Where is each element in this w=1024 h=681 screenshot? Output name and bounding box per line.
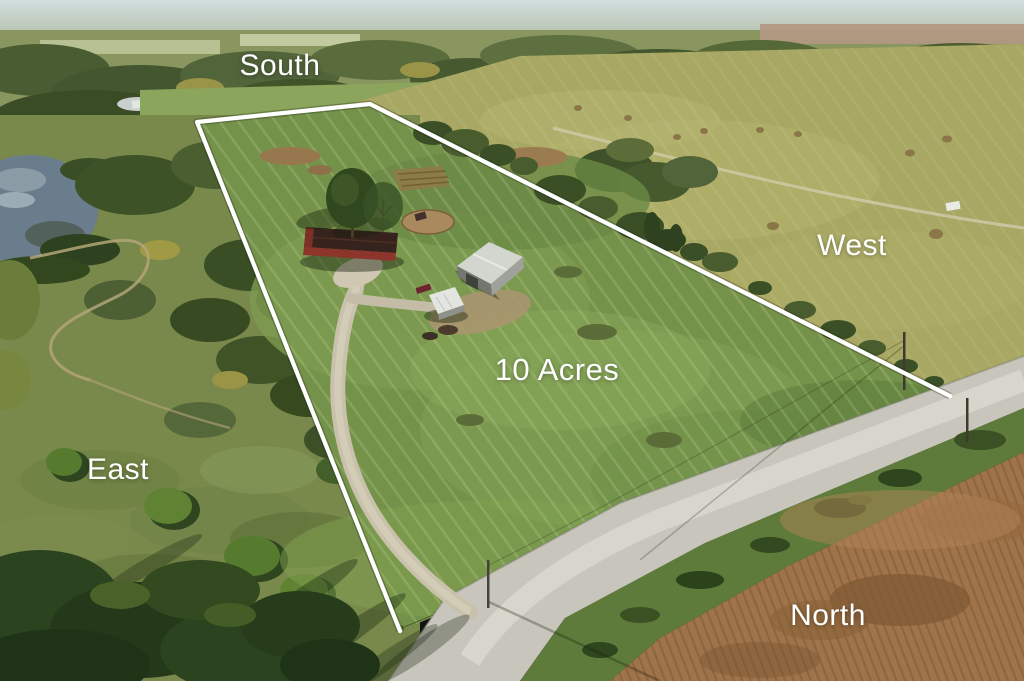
acreage-label: 10 Acres — [495, 352, 620, 388]
direction-label-west: West — [817, 229, 887, 263]
aerial-photo-canvas — [0, 0, 1024, 681]
direction-label-south: South — [240, 49, 321, 83]
direction-label-east: East — [87, 453, 149, 487]
dirt-patch — [260, 147, 320, 165]
direction-label-north: North — [790, 599, 866, 633]
aerial-property-photo: South West East North 10 Acres — [0, 0, 1024, 681]
dirt-circle — [402, 210, 454, 234]
